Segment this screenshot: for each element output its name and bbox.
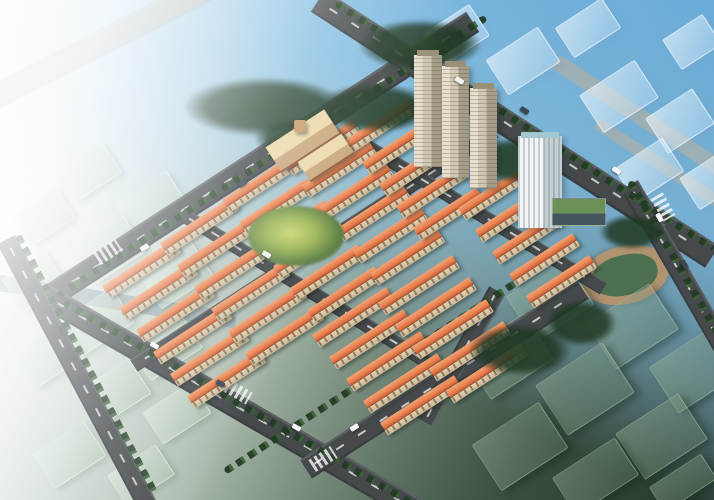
ghost-building-blue [555, 0, 622, 58]
ghost-building-green [32, 421, 107, 490]
tree-canopy [600, 215, 664, 249]
ghost-building-blue [486, 27, 561, 96]
aerial-rendering [0, 0, 714, 500]
ghost-building-green [54, 141, 122, 203]
clubhouse-turret [294, 120, 306, 132]
residential-tower [414, 55, 442, 167]
podium-building [552, 198, 606, 226]
central-garden [248, 206, 344, 266]
residential-tower [442, 66, 469, 178]
car [519, 106, 529, 115]
tree-canopy [470, 325, 570, 375]
rendering-canvas [0, 0, 714, 500]
residential-tower [470, 88, 497, 188]
ghost-building-blue [662, 14, 714, 70]
ghost-building-blue [679, 156, 714, 211]
